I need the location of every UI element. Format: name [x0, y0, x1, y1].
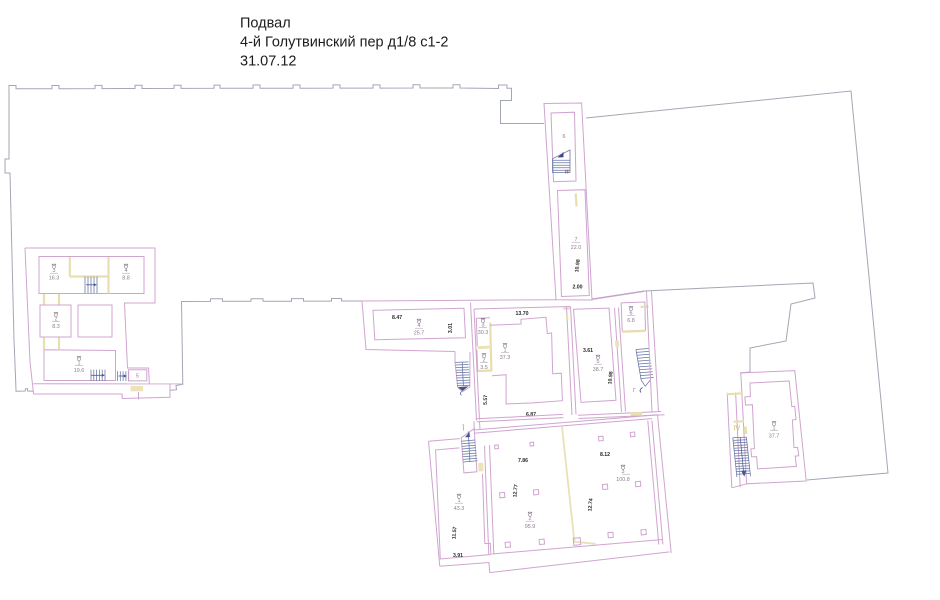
svg-text:37.3: 37.3	[500, 355, 511, 361]
svg-text:6: 6	[563, 134, 566, 140]
svg-text:Г: Г	[633, 388, 636, 394]
svg-text:7.86: 7.86	[518, 458, 528, 464]
svg-text:12.74: 12.74	[587, 498, 594, 512]
svg-text:11.57: 11.57	[451, 526, 458, 539]
svg-text:6.8: 6.8	[627, 318, 635, 324]
svg-text:Подвал: Подвал	[240, 16, 291, 32]
svg-text:13.70: 13.70	[516, 311, 529, 317]
svg-text:38.7: 38.7	[593, 367, 604, 373]
svg-text:37.7: 37.7	[769, 434, 780, 440]
svg-text:31.07.12: 31.07.12	[240, 54, 296, 70]
svg-text:4-й Голутвинский пер д1/8 с1-2: 4-й Голутвинский пер д1/8 с1-2	[240, 35, 449, 51]
svg-text:5.57: 5.57	[483, 395, 490, 406]
svg-text:30.3: 30.3	[478, 330, 489, 336]
svg-text:3.61: 3.61	[583, 348, 593, 354]
svg-text:95.9: 95.9	[525, 524, 536, 530]
svg-text:6.87: 6.87	[526, 412, 536, 418]
svg-text:12.77: 12.77	[512, 484, 519, 498]
svg-text:3.01: 3.01	[448, 323, 454, 333]
svg-text:5: 5	[136, 374, 139, 380]
svg-text:2.00: 2.00	[572, 284, 582, 290]
svg-text:25.7: 25.7	[414, 331, 425, 337]
svg-text:8.8: 8.8	[122, 276, 130, 282]
svg-text:3.91: 3.91	[453, 553, 463, 559]
svg-text:16.3: 16.3	[49, 276, 60, 282]
svg-text:22.0: 22.0	[571, 245, 582, 251]
svg-text:8.47: 8.47	[392, 315, 402, 321]
svg-text:IV: IV	[733, 423, 741, 432]
svg-text:8.3: 8.3	[52, 324, 60, 330]
svg-text:43.3: 43.3	[454, 506, 465, 512]
svg-text:100.8: 100.8	[616, 477, 630, 483]
svg-text:19.6: 19.6	[74, 368, 85, 374]
svg-text:8.12: 8.12	[600, 452, 610, 458]
